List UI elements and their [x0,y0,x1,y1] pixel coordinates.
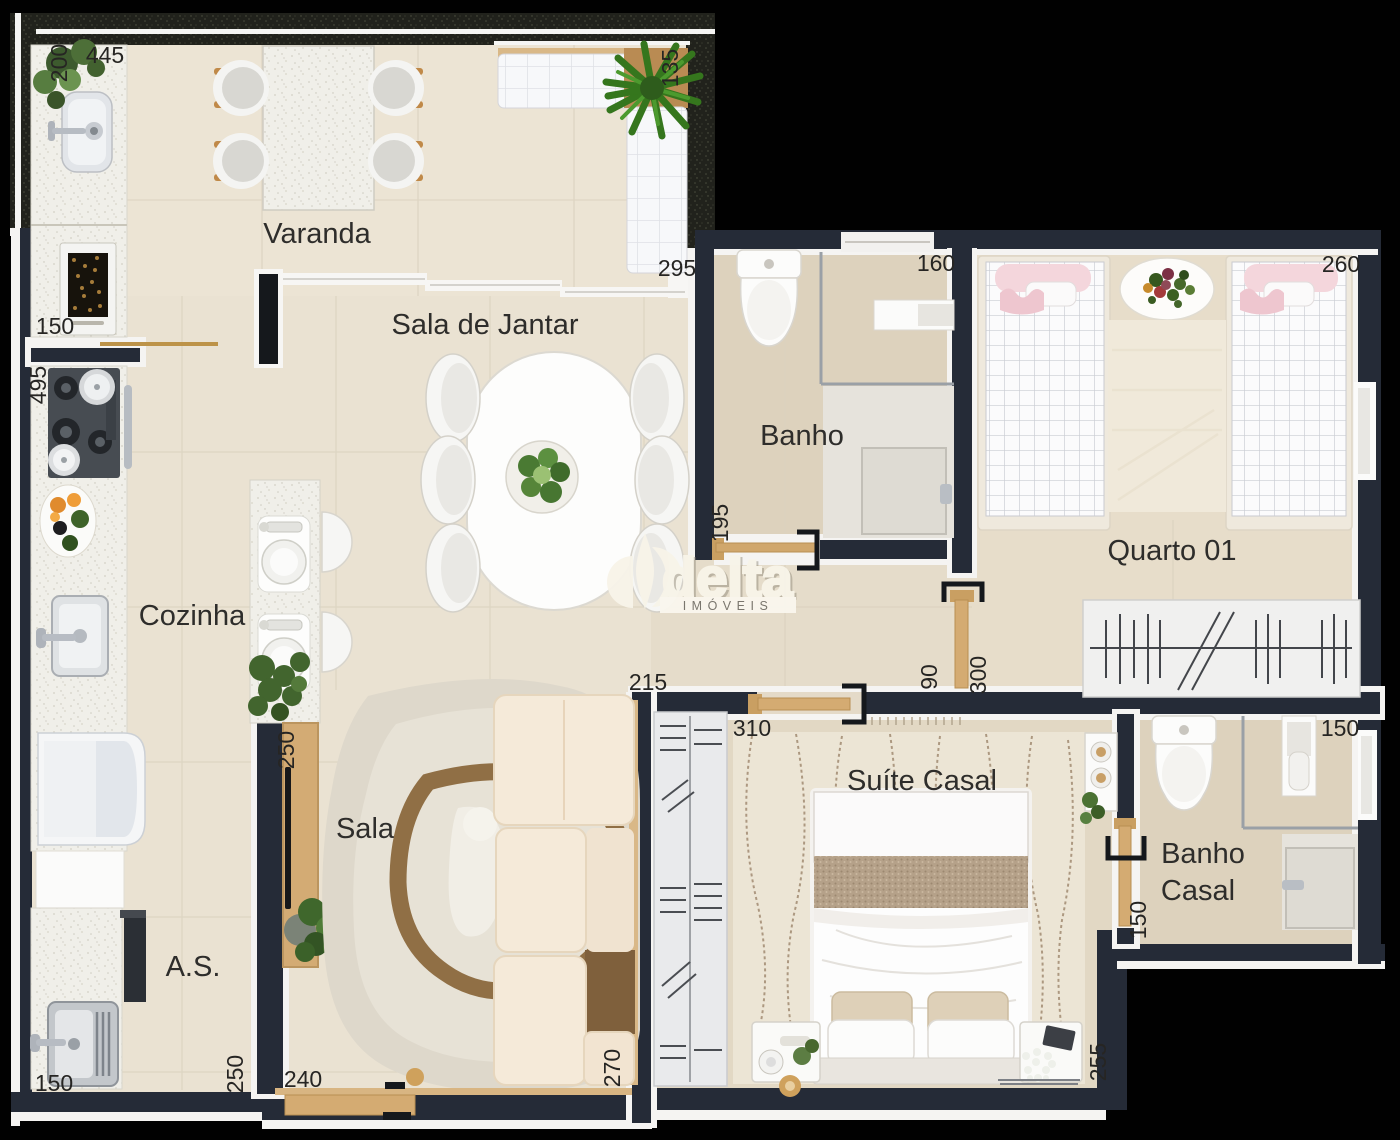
svg-text:Sala de Jantar: Sala de Jantar [391,309,578,341]
svg-text:160: 160 [917,250,955,276]
svg-text:150: 150 [35,1070,73,1096]
svg-text:240: 240 [284,1066,322,1092]
svg-text:250: 250 [222,1055,248,1093]
svg-text:135: 135 [657,49,683,87]
svg-text:200: 200 [46,44,72,82]
svg-text:495: 495 [25,366,51,404]
svg-text:150: 150 [36,313,74,339]
svg-text:IMÓVEIS: IMÓVEIS [683,598,774,613]
svg-text:255: 255 [1085,1043,1111,1081]
svg-text:215: 215 [629,669,667,695]
svg-text:150: 150 [1125,901,1151,939]
svg-text:Quarto 01: Quarto 01 [1108,535,1237,567]
svg-text:150: 150 [1321,715,1359,741]
svg-text:A.S.: A.S. [166,951,221,983]
svg-text:310: 310 [733,715,771,741]
svg-text:195: 195 [707,504,733,542]
svg-text:Sala: Sala [336,813,395,845]
svg-text:300: 300 [965,656,991,694]
svg-text:260: 260 [1322,251,1360,277]
svg-text:Banho: Banho [760,420,844,452]
svg-text:250: 250 [273,731,299,769]
svg-text:Cozinha: Cozinha [139,600,246,632]
svg-text:90: 90 [916,664,942,690]
svg-text:295: 295 [658,255,696,281]
svg-text:Suíte Casal: Suíte Casal [847,765,997,797]
svg-text:Varanda: Varanda [263,218,371,250]
svg-text:Casal: Casal [1161,875,1235,907]
svg-text:270: 270 [599,1049,625,1087]
svg-text:Banho: Banho [1161,838,1245,870]
svg-text:445: 445 [86,42,124,68]
